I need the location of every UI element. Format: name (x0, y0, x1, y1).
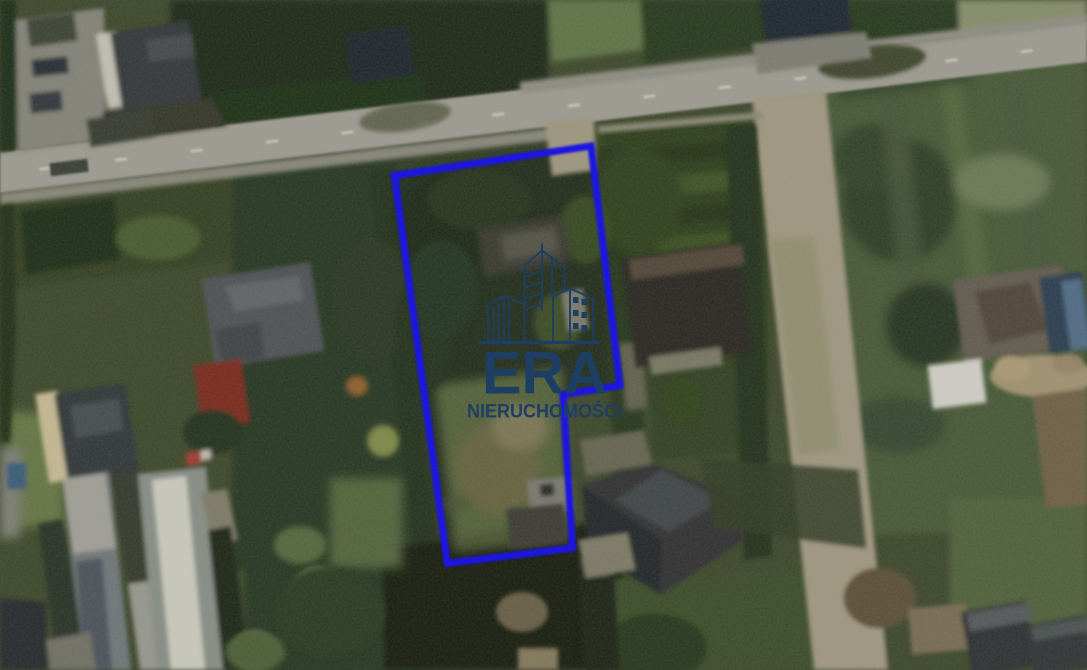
svg-text:ERA: ERA (482, 340, 607, 407)
svg-text:NIERUCHOMOŚCI: NIERUCHOMOŚCI (467, 399, 622, 423)
